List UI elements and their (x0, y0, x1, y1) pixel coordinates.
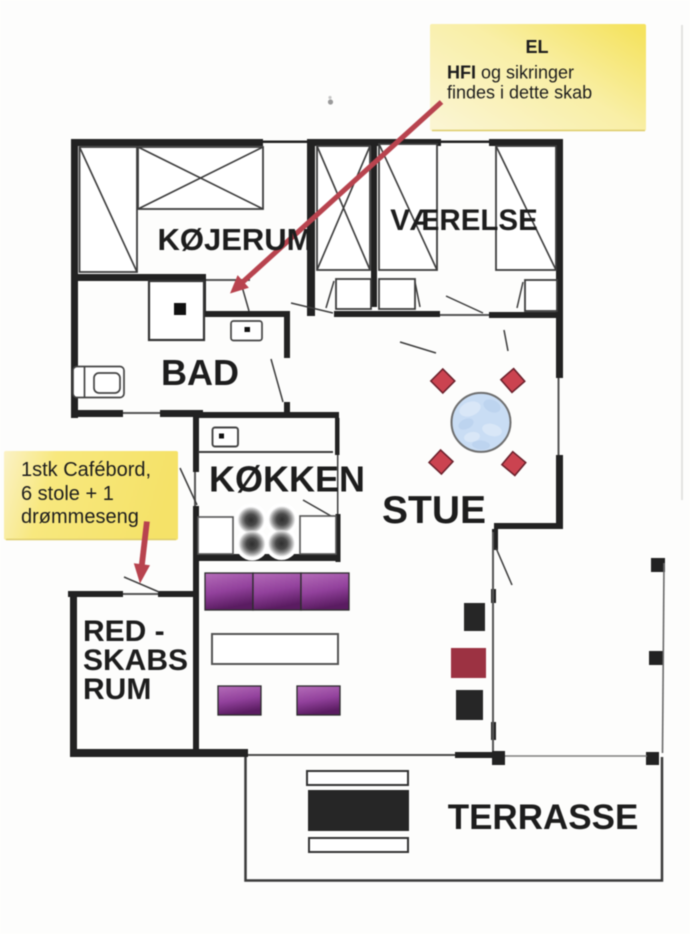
svg-text:BAD: BAD (161, 352, 239, 393)
svg-text:1stk Cafébord,: 1stk Cafébord, (21, 459, 151, 481)
svg-text:findes i dette skab: findes i dette skab (447, 83, 592, 103)
svg-text:EL: EL (525, 37, 548, 57)
svg-text:VÆRELSE: VÆRELSE (390, 204, 538, 237)
svg-text:TERRASSE: TERRASSE (448, 798, 639, 837)
svg-text:drømmeseng: drømmeseng (21, 506, 139, 528)
svg-text:6 stole + 1: 6 stole + 1 (21, 483, 114, 505)
svg-text:STUE: STUE (382, 489, 486, 532)
svg-text:RUM: RUM (83, 673, 151, 706)
svg-text:KØKKEN: KØKKEN (209, 459, 365, 500)
svg-text:KØJERUM: KØJERUM (157, 222, 312, 257)
svg-text:HFI og sikringer: HFI og sikringer (447, 63, 574, 83)
